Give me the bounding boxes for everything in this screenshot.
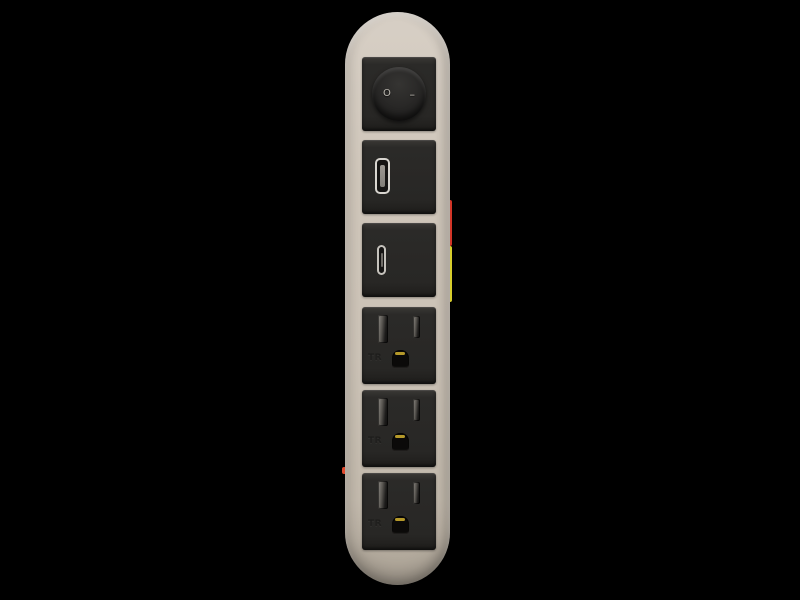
usb-c-pin [381,253,383,267]
power-switch-button[interactable]: O – [372,67,426,121]
neutral-slot [378,398,388,426]
power-strip-body: O – TR TR [345,12,450,585]
ac-outlet-2: TR [362,390,436,467]
neutral-slot [378,315,388,343]
ground-contact [395,352,405,355]
hot-slot [413,316,420,338]
ac-outlet-1: TR [362,307,436,384]
tr-marking: TR [368,519,382,529]
usb-c-module [362,223,436,297]
usb-a-module [362,140,436,214]
ground-contact [395,435,405,438]
hot-slot [413,399,420,421]
ground-hole [392,350,409,368]
neutral-slot [378,481,388,509]
ground-contact [395,518,405,521]
power-switch-module: O – [362,57,436,131]
ac-outlet-3: TR [362,473,436,550]
tr-marking: TR [368,353,382,363]
usb-a-tongue [380,165,385,187]
usb-a-port-icon [375,158,390,194]
product-image-canvas: O – TR TR [0,0,800,600]
ground-hole [392,516,409,534]
usb-c-port-icon [377,245,386,275]
tr-marking: TR [368,436,382,446]
switch-off-symbol: O [383,89,391,99]
hot-slot [413,482,420,504]
ground-hole [392,433,409,451]
switch-on-symbol: – [410,89,416,100]
